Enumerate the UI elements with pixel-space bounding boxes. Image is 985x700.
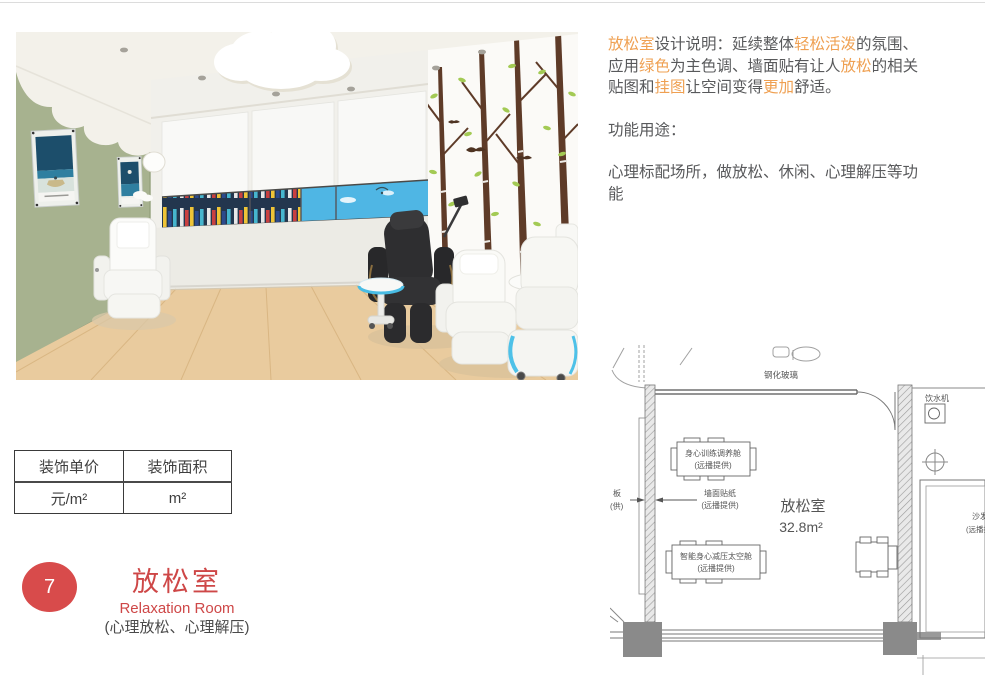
design-description: 放松室设计说明：延续整体轻松活泼的氛围、 应用绿色为主色调、墙面贴有让人放松的相… <box>608 34 980 205</box>
table-cell-area: m² <box>123 482 231 514</box>
equipment-top-label-1: 身心训练调养舱 <box>685 448 741 458</box>
column <box>623 622 662 657</box>
equipment-bottom-label-1: 智能身心减压太空舱 <box>680 551 752 561</box>
blue-trim-machine <box>508 330 578 380</box>
column <box>883 622 917 655</box>
wall-poster-small <box>117 157 143 208</box>
wall-poster-large <box>31 129 79 207</box>
sofa-label-2: (远播提供) <box>966 524 985 534</box>
room-number: 7 <box>44 576 55 599</box>
glass-wall <box>655 390 857 394</box>
sofa-outline <box>920 480 985 638</box>
outside-board <box>639 418 645 594</box>
equipment-bottom-label-2: (远播提供) <box>697 563 735 573</box>
top-divider <box>0 2 985 3</box>
presentation-page: 放松室设计说明：延续整体轻松活泼的氛围、 应用绿色为主色调、墙面贴有让人放松的相… <box>0 0 985 700</box>
room-title-en: Relaxation Room <box>88 600 266 618</box>
equipment-top-capsule <box>671 438 756 480</box>
function-body: 心理标配场所，做放松、休闲、心理解压等功 能 <box>608 162 980 205</box>
room-render-image <box>16 32 578 380</box>
left-partial-label-2: (供) <box>610 501 624 511</box>
wall-sticker-label-2: (远播提供) <box>701 500 739 510</box>
equipment-top-label-2: (远播提供) <box>694 460 732 470</box>
table-header-row: 装饰单价 装饰面积 <box>15 451 232 483</box>
annex-right: 饮水机 沙发 (远播提供) <box>912 388 985 675</box>
table-cell-unit-price: 元/m² <box>15 482 124 514</box>
floor-plan-svg: 钢化玻璃 <box>610 340 985 675</box>
door <box>857 392 895 430</box>
table-header-area: 装饰面积 <box>123 451 231 483</box>
roller-shade <box>162 112 248 204</box>
wall-sticker-label-1: 墙面贴纸 <box>704 488 736 498</box>
room-title-cn: 放松室 <box>88 566 266 598</box>
left-wall <box>645 385 655 622</box>
column-marker <box>922 449 948 475</box>
glass-wall-label: 钢化玻璃 <box>764 370 799 380</box>
roller-shade <box>252 102 334 194</box>
right-wall <box>898 385 912 622</box>
room-number-badge: 7 <box>22 562 77 612</box>
sofa-label-1: 沙发 <box>972 511 985 521</box>
round-wall-lamp <box>143 152 165 172</box>
table-header-unit-price: 装饰单价 <box>15 451 124 483</box>
room-render-svg <box>16 32 578 380</box>
pricing-table: 装饰单价 装饰面积 元/m² m² <box>14 450 232 514</box>
chair-and-table <box>856 537 897 577</box>
roller-shade <box>338 91 426 187</box>
table-unit-row: 元/m² m² <box>15 482 232 514</box>
room-area-label: 32.8m² <box>779 519 823 535</box>
equipment-bottom-capsule <box>666 541 766 583</box>
room-title-block: 放松室 Relaxation Room (心理放松、心理解压) <box>88 566 266 637</box>
room-title-note: (心理放松、心理解压) <box>88 618 266 637</box>
design-description-text: 放松室设计说明：延续整体轻松活泼的氛围、 应用绿色为主色调、墙面贴有让人放松的相… <box>608 34 980 99</box>
water-dispenser-label: 饮水机 <box>925 393 949 403</box>
floor-plan: 钢化玻璃 <box>610 340 985 675</box>
function-heading: 功能用途： <box>608 120 980 142</box>
bottom-wall <box>610 608 941 657</box>
room-name-label: 放松室 <box>780 498 825 515</box>
plan-context-top <box>612 345 820 388</box>
left-partial-label-1: 板 <box>613 488 621 498</box>
